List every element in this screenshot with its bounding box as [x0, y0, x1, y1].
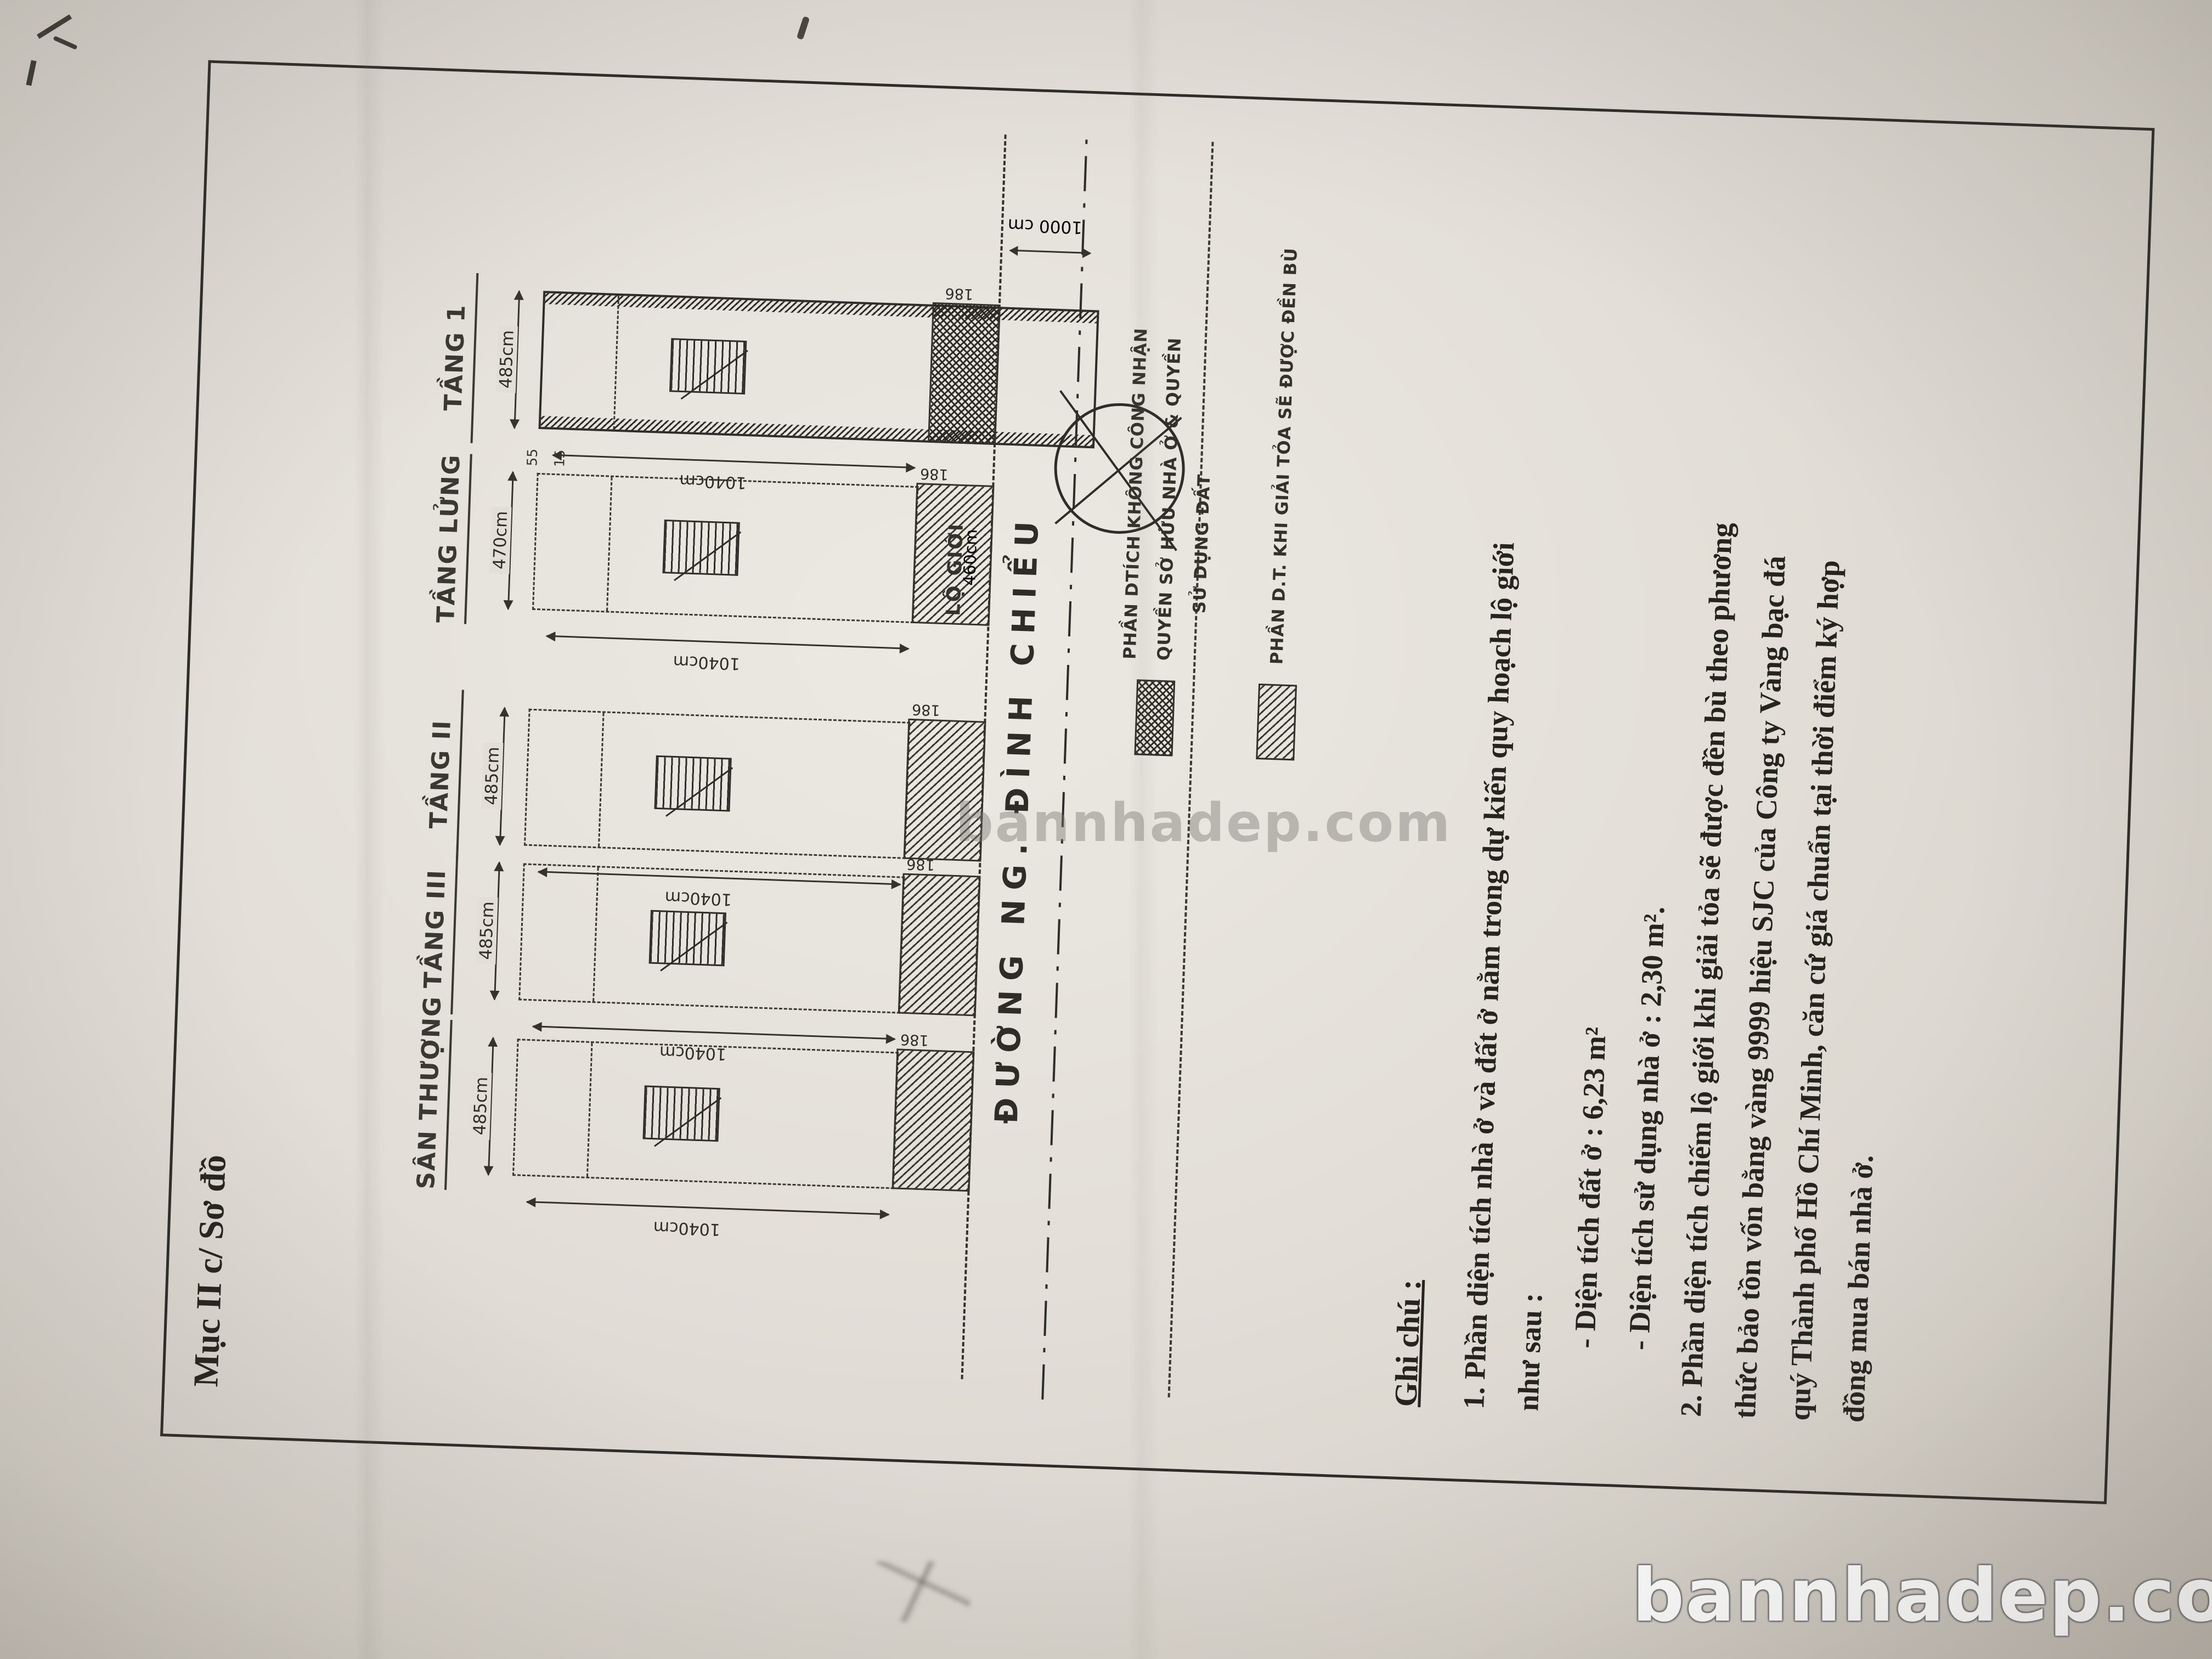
- watermark-corner: bannhadep.com: [1632, 1554, 2212, 1638]
- strip-dim-value: 460cm: [960, 529, 981, 586]
- photo-artifact: [797, 16, 810, 40]
- plan-outline: [524, 709, 910, 859]
- floor-label: SÂN THƯỢNG: [412, 1019, 453, 1190]
- plan-outline: [518, 863, 905, 1013]
- stair-icon: [649, 910, 726, 967]
- dim-arrow-right-icon: [499, 707, 510, 717]
- street-half-width-dim-value: 1000 cm: [1007, 215, 1082, 238]
- road-reserve-hatch: [892, 1048, 975, 1192]
- depth-dim-value: 1040cm: [679, 471, 747, 492]
- floorplan-san-thuong: SÂN THƯỢNG 485cm 1040cm 186: [172, 1027, 1328, 1204]
- page-title: Mục II c/ Sơ đồ: [185, 1154, 234, 1387]
- brick-wall-hatch: [545, 293, 1097, 323]
- partition-line: [586, 1043, 593, 1177]
- plan-outline-ground-floor: [538, 291, 1099, 448]
- dim-value: 485cm: [476, 896, 498, 964]
- document-page: Mục II c/ Sơ đồ SÂN THƯỢNG 485cm 1040cm …: [160, 60, 2154, 1504]
- dim-value: 485cm: [481, 742, 503, 810]
- stair-icon: [654, 755, 731, 812]
- photo-canvas: Mục II c/ Sơ đồ SÂN THƯỢNG 485cm 1040cm …: [0, 0, 2212, 1659]
- dim-value: 485cm: [496, 325, 518, 393]
- floor-label: TẦNG LỬNG: [432, 453, 472, 624]
- depth-dim-line: [546, 635, 909, 650]
- legend-crosshatch-swatch: [1134, 679, 1175, 756]
- stair-icon: [642, 1085, 720, 1142]
- depth-dim-line: [553, 454, 915, 469]
- depth-dim-value: 1040cm: [664, 888, 732, 909]
- width-dimension: 485cm: [483, 862, 510, 1000]
- floor-label: TẦNG 1: [438, 272, 479, 443]
- watermark-center: bannhadep.com: [956, 792, 1452, 854]
- encroach-dim-value: 186: [900, 1031, 929, 1049]
- no-ownership-hatch: [928, 302, 1001, 445]
- notes-block: Ghi chú : 1. Phần diện tích nhà ở và đất…: [1378, 145, 1925, 1424]
- dim-value: 470cm: [489, 506, 511, 574]
- width-dimension: 470cm: [497, 472, 524, 610]
- depth-dim-value: 1040cm: [673, 652, 740, 673]
- dim-arrow-right-icon: [494, 861, 504, 872]
- floor-label: TẦNG II: [424, 689, 464, 860]
- photo-artifact: [877, 1561, 970, 1622]
- side-dim-value: 55: [524, 448, 540, 466]
- stair-icon: [662, 520, 740, 576]
- dim-arrow-right-icon: [488, 1036, 498, 1047]
- encroach-dim-value: 186: [945, 285, 974, 303]
- dim-arrow-right-icon: [507, 471, 518, 481]
- encroach-dim-value: 186: [920, 465, 949, 483]
- legend-diagonal-swatch: [1256, 684, 1297, 760]
- width-dimension: 485cm: [477, 1037, 504, 1175]
- brick-wall-hatch: [541, 416, 1093, 446]
- width-dimension: 485cm: [489, 707, 516, 845]
- partition-line: [613, 296, 620, 430]
- encroach-dim-value: 186: [912, 701, 941, 719]
- floor-label: TẦNG III: [418, 843, 459, 1014]
- stair-icon: [669, 338, 747, 394]
- plan-outline: [532, 473, 918, 623]
- road-reserve-hatch: [898, 873, 981, 1017]
- partition-line: [598, 713, 605, 847]
- depth-dim-value: 1040cm: [659, 1042, 726, 1063]
- partition-line: [592, 867, 599, 1001]
- dim-arrow-right-icon: [514, 290, 524, 300]
- depth-dim-value: 1040cm: [653, 1217, 720, 1239]
- depth-dim-line: [527, 1201, 889, 1215]
- document-tilt-wrapper: Mục II c/ Sơ đồ SÂN THƯỢNG 485cm 1040cm …: [160, 60, 2154, 1504]
- photo-corner-shadow: [0, 0, 230, 181]
- floorplan-tang-iii: TẦNG III 485cm 1040cm 186: [179, 851, 1335, 1029]
- street-half-width-dim-line: [1010, 250, 1090, 254]
- partition-line: [606, 477, 613, 611]
- depth-dim-line: [533, 1025, 895, 1040]
- dim-value: 485cm: [470, 1072, 492, 1140]
- width-dimension: 485cm: [504, 291, 531, 428]
